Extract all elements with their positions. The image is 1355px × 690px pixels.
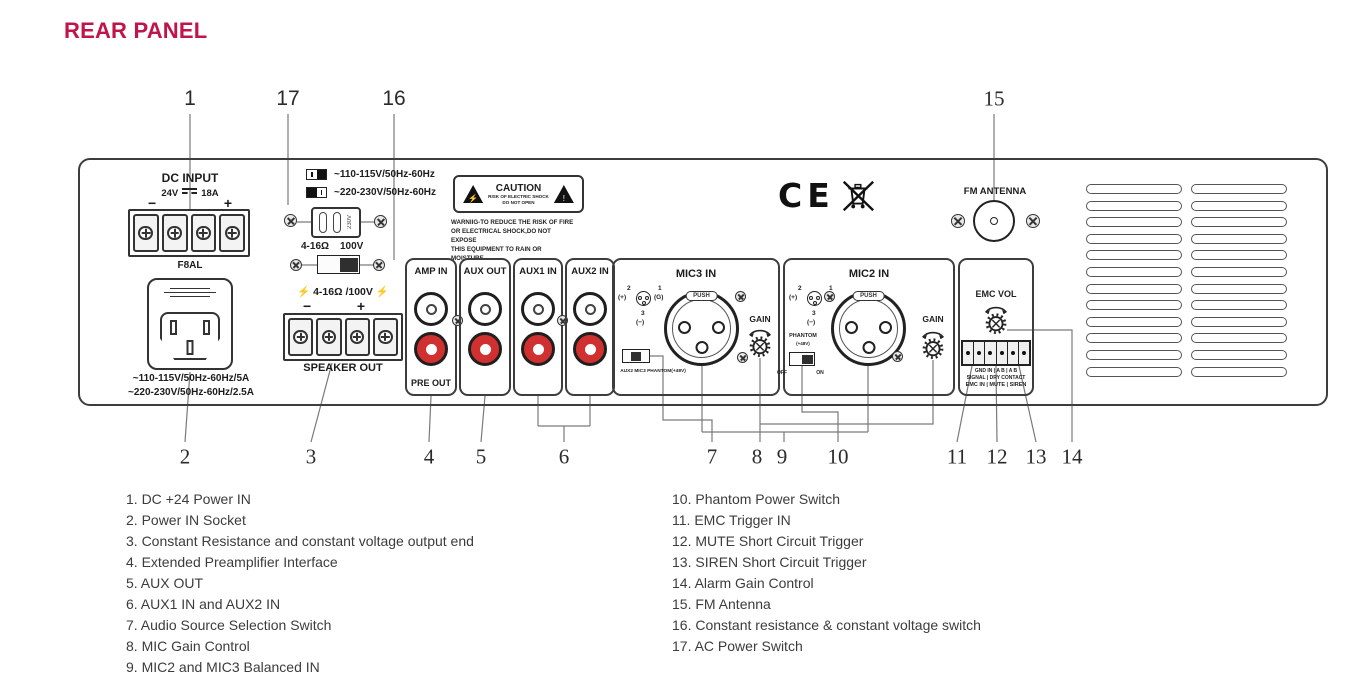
amp-in-red-jack (414, 332, 448, 366)
voltage-option-row-1: ~110-115V/50Hz-60Hz (306, 169, 435, 181)
mic2-gain-knob (917, 328, 949, 360)
switch-knob (802, 355, 812, 364)
callout-9: 9 (777, 445, 788, 470)
dc-fuse-label: F8AL (128, 260, 252, 272)
pinout-1: 1 (658, 286, 662, 293)
pinout-2: 2 (798, 286, 802, 293)
vent-column-left (1086, 184, 1182, 383)
aux-out-group: AUX OUT (459, 258, 511, 396)
vent-slot (1086, 284, 1182, 294)
vent-column-right (1191, 184, 1287, 383)
power-socket-rating: ~110-115V/50Hz-60Hz/5A ~220-230V/50Hz-60… (103, 372, 279, 400)
legend-item: 7. Audio Source Selection Switch (126, 615, 474, 636)
amp-in-label: AMP IN (407, 267, 455, 278)
vent-slot (1191, 250, 1287, 260)
dc-terminal-block (128, 209, 250, 257)
impedance-voltage-switch (317, 255, 360, 274)
legend-right-column: 10. Phantom Power Switch11. EMC Trigger … (672, 489, 981, 657)
vent-slot (1086, 333, 1182, 343)
vent-slot (1191, 234, 1287, 244)
callout-12: 12 (987, 445, 1008, 470)
aux1-in-white-jack (521, 292, 555, 326)
legend-left-column: 1. DC +24 Power IN2. Power IN Socket3. C… (126, 489, 474, 678)
voltage-label: 100V (340, 241, 363, 253)
voltage-option-row-2: ~220-230V/50Hz-60Hz (306, 187, 436, 199)
vent-slot (1191, 217, 1287, 227)
voltage-option-220: ~220-230V/50Hz-60Hz (334, 187, 436, 199)
vent-slot (1191, 367, 1287, 377)
screw-icon (824, 291, 835, 302)
emc-vol-label: EMC VOL (958, 289, 1034, 299)
emc-terminal-pin (1008, 342, 1019, 364)
emc-terminal-pin (1019, 342, 1029, 364)
voltage-option-110: ~110-115V/50Hz-60Hz (334, 169, 435, 181)
callout-5: 5 (476, 445, 487, 470)
pre-out-label: PRE OUT (407, 378, 455, 388)
vent-slot (1191, 350, 1287, 360)
terminal-screw (133, 214, 159, 252)
emc-terminal-pin (985, 342, 996, 364)
pinout-3: 3 (641, 311, 645, 318)
callout-3: 3 (306, 445, 317, 470)
callout-10: 10 (828, 445, 849, 470)
screw-icon (374, 215, 387, 228)
callout-8: 8 (752, 445, 763, 470)
vent-slot (1086, 234, 1182, 244)
callout-11: 11 (947, 445, 967, 470)
legend-item: 6. AUX1 IN and AUX2 IN (126, 594, 474, 615)
lightning-icon: ⚡ (376, 286, 389, 298)
emc-terminal-pin (963, 342, 974, 364)
legend-item: 16. Constant resistance & constant volta… (672, 615, 981, 636)
push-latch-label: PUSH (685, 291, 718, 301)
terminal-screw (162, 214, 188, 252)
impedance-label: 4-16Ω (301, 241, 329, 253)
terminal-screw (219, 214, 245, 252)
xlr-symbol-icon (807, 291, 822, 306)
switch-knob (340, 258, 357, 272)
dc-input-title: DC INPUT (128, 172, 252, 186)
aux-out-red-jack (468, 332, 502, 366)
screw-icon (284, 214, 297, 227)
callout-16: 16 (382, 87, 405, 111)
mic2-gain-label: GAIN (917, 314, 949, 324)
vent-slot (1191, 317, 1287, 327)
pinout-plus: (+) (618, 295, 626, 302)
terminal-screw (316, 318, 341, 356)
warning-line-1: WARNIIG-TO REDUCE THE RISK OF FIRE (451, 218, 576, 227)
screw-icon (1026, 214, 1040, 228)
vent-slot (1191, 201, 1287, 211)
screw-icon (373, 259, 385, 271)
aux-out-label: AUX OUT (461, 267, 509, 278)
legend-item: 9. MIC2 and MIC3 Balanced IN (126, 657, 474, 678)
terminal-screw (373, 318, 398, 356)
power-socket (147, 278, 233, 370)
vent-slot (1086, 184, 1182, 194)
switch-knob (631, 352, 642, 361)
legend-item: 8. MIC Gain Control (126, 636, 474, 657)
speaker-rating: ⚡ 4-16Ω /100V ⚡ (283, 286, 403, 298)
terminal-screw (288, 318, 313, 356)
page-title: REAR PANEL (64, 18, 207, 44)
amp-in-group: AMP IN PRE OUT (405, 258, 457, 396)
aux-out-white-jack (468, 292, 502, 326)
xlr-pin (845, 321, 858, 334)
fuse-slot (319, 212, 327, 233)
vent-slot (1086, 250, 1182, 260)
fuse-orientation-icon-220 (306, 187, 327, 198)
ac-power-switch: 230V (311, 207, 361, 238)
aux2-in-white-jack (573, 292, 607, 326)
phantom-power-switch (789, 352, 815, 366)
emc-pins-row: GND IN | A B | A B (954, 368, 1038, 374)
xlr-symbol-icon (636, 291, 651, 306)
phantom-line-2: (+48V) (781, 340, 825, 347)
socket-pin (170, 320, 177, 335)
aux2-in-red-jack (573, 332, 607, 366)
rating-line-1: ~110-115V/50Hz-60Hz/5A (103, 372, 279, 386)
speaker-out-label: SPEAKER OUT (283, 362, 403, 375)
phantom-on-label: ON (812, 370, 828, 376)
pinout-2: 2 (627, 286, 631, 293)
pinout-ground: (G) (654, 295, 663, 302)
pinout-minus: (−) (807, 320, 815, 327)
exclamation-warning-icon: ! (554, 185, 574, 203)
callout-13: 13 (1026, 445, 1047, 470)
legend-item: 3. Constant Resistance and constant volt… (126, 531, 474, 552)
vent-slot (1191, 300, 1287, 310)
aux1-in-red-jack (521, 332, 555, 366)
emc-vol-knob (980, 303, 1012, 335)
xlr-pin (862, 341, 875, 354)
screw-icon (951, 214, 965, 228)
aux1-in-label: AUX1 IN (515, 267, 561, 278)
warning-text: WARNIIG-TO REDUCE THE RISK OF FIRE OR EL… (451, 218, 576, 263)
legend-item: 4. Extended Preamplifier Interface (126, 552, 474, 573)
xlr-pin (879, 321, 892, 334)
vent-slot (1086, 267, 1182, 277)
callout-2: 2 (180, 445, 191, 470)
xlr-pin (712, 321, 725, 334)
power-socket-receptacle (160, 312, 220, 360)
page: REAR PANEL DC INPUT 24V18A (0, 0, 1355, 690)
pinout-minus: (−) (636, 320, 644, 327)
weee-bin-icon (838, 176, 876, 216)
callout-17: 17 (276, 87, 299, 111)
legend-item: 1. DC +24 Power IN (126, 489, 474, 510)
speaker-minus: − (303, 298, 311, 314)
caution-text: CAUTION RISK OF ELECTRIC SHOCK DO NOT OP… (488, 183, 549, 205)
fuse-orientation-icon-110 (306, 169, 327, 180)
caution-line-2: DO NOT OPEN (488, 200, 549, 205)
screw-icon (892, 351, 903, 362)
phantom-line-1: PHANTOM (781, 333, 825, 340)
legend-item: 11. EMC Trigger IN (672, 510, 981, 531)
speaker-rating-text: 4-16Ω /100V (313, 286, 373, 298)
mic2-in-label: MIC2 IN (785, 268, 953, 281)
ce-mark: CE (778, 176, 835, 215)
emc-signal-row: SIGNAL | DRY CONTACT (954, 375, 1038, 381)
xlr-pin (695, 341, 708, 354)
screw-icon (290, 259, 302, 271)
legend-item: 2. Power IN Socket (126, 510, 474, 531)
legend-item: 13. SIREN Short Circuit Trigger (672, 552, 981, 573)
emc-function-row: EMC IN | MUTE | SIREN (954, 382, 1038, 388)
legend-item: 17. AC Power Switch (672, 636, 981, 657)
warning-line-2: OR ELECTRICAL SHOCK,DO NOT EXPOSE (451, 227, 576, 245)
vent-slot (1191, 333, 1287, 343)
terminal-screw (345, 318, 370, 356)
aux1-in-group: AUX1 IN (513, 258, 563, 396)
phantom-label: PHANTOM (+48V) (781, 333, 825, 347)
mic3-gain-knob (744, 326, 776, 358)
callout-14: 14 (1062, 445, 1083, 470)
callout-4: 4 (424, 445, 435, 470)
emc-terminal-pin (974, 342, 985, 364)
caution-title: CAUTION (488, 183, 549, 195)
push-latch-label: PUSH (852, 291, 885, 301)
dc-symbol-icon (182, 188, 197, 195)
emc-terminal-pin (997, 342, 1008, 364)
vent-slot (1086, 201, 1182, 211)
terminal-screw (191, 214, 217, 252)
phantom-off-label: OFF (772, 370, 792, 376)
vent-slot (1191, 267, 1287, 277)
caution-line-1: RISK OF ELECTRIC SHOCK (488, 194, 549, 199)
fm-antenna-connector (973, 200, 1015, 242)
aux2-in-label: AUX2 IN (567, 267, 613, 278)
legend-item: 10. Phantom Power Switch (672, 489, 981, 510)
vent-slot (1086, 317, 1182, 327)
amp-in-white-jack (414, 292, 448, 326)
speaker-terminal-block (283, 313, 403, 361)
source-switch-options: AUX2 MIC3 PHANTOM(+48V) (610, 369, 696, 374)
emc-terminal-block (961, 340, 1031, 366)
vent-slot (1086, 217, 1182, 227)
lightning-warning-icon: ⚡ (463, 185, 483, 203)
lightning-icon: ⚡ (297, 286, 310, 298)
callout-15: 15 (984, 87, 1005, 112)
socket-pin (203, 320, 210, 335)
legend-item: 14. Alarm Gain Control (672, 573, 981, 594)
caution-label: ⚡ CAUTION RISK OF ELECTRIC SHOCK DO NOT … (453, 175, 584, 213)
screw-icon (735, 291, 746, 302)
pinout-plus: (+) (789, 295, 797, 302)
aux2-in-group: AUX2 IN (565, 258, 615, 396)
vent-slot (1086, 300, 1182, 310)
fuse-drawer-lines (149, 288, 231, 297)
callout-7: 7 (707, 445, 718, 470)
vent-slot (1191, 184, 1287, 194)
mic3-xlr-connector: PUSH (664, 291, 739, 366)
speaker-plus: + (357, 298, 365, 314)
callout-6: 6 (559, 445, 570, 470)
fuse-slot (333, 212, 341, 233)
xlr-pin (678, 321, 691, 334)
speaker-polarity: − + (303, 298, 365, 314)
socket-pin (187, 340, 194, 355)
audio-source-switch (622, 349, 650, 363)
legend-item: 15. FM Antenna (672, 594, 981, 615)
mic3-in-label: MIC3 IN (614, 268, 778, 281)
legend-item: 5. AUX OUT (126, 573, 474, 594)
vent-slot (1086, 350, 1182, 360)
xlr-pinout-diagram: 2 (+) 1 (G) 3 (−) (618, 286, 670, 330)
pinout-3: 3 (812, 311, 816, 318)
cartridge-voltage-label: 230V (347, 215, 353, 229)
vent-slot (1086, 367, 1182, 377)
fm-antenna-label: FM ANTENNA (945, 187, 1045, 198)
mic3-gain-label: GAIN (744, 314, 776, 324)
callout-1: 1 (184, 87, 196, 111)
vent-slot (1191, 284, 1287, 294)
legend-item: 12. MUTE Short Circuit Trigger (672, 531, 981, 552)
rating-line-2: ~220-230V/50Hz-60Hz/2.5A (103, 386, 279, 400)
